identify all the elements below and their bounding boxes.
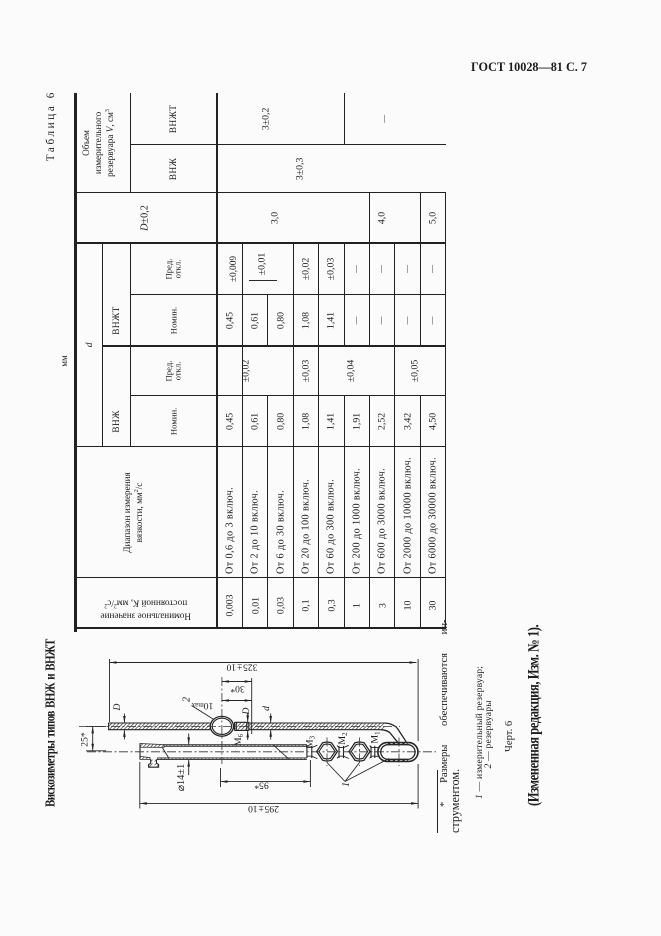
svg-text:1: 1 xyxy=(341,782,352,787)
svg-text:295 ± 10: 295 ± 10 xyxy=(248,803,279,814)
svg-text:M1: M1 xyxy=(370,731,382,744)
svg-text:325 ± 10: 325 ± 10 xyxy=(226,661,257,672)
svg-text:30*: 30* xyxy=(230,683,245,694)
svg-text:D: D xyxy=(241,707,252,715)
svg-text:10max: 10max xyxy=(191,700,213,711)
svg-text:95*: 95* xyxy=(254,779,269,790)
svg-text:M2: M2 xyxy=(337,732,349,745)
svg-text:M6: M6 xyxy=(233,733,245,746)
svg-text:⌀14±1: ⌀14±1 xyxy=(176,764,187,792)
svg-text:M3: M3 xyxy=(305,735,317,748)
svg-text:d: d xyxy=(261,706,272,711)
svg-text:2: 2 xyxy=(182,697,193,702)
svg-text:D: D xyxy=(112,703,123,711)
svg-text:25*: 25* xyxy=(80,732,91,747)
